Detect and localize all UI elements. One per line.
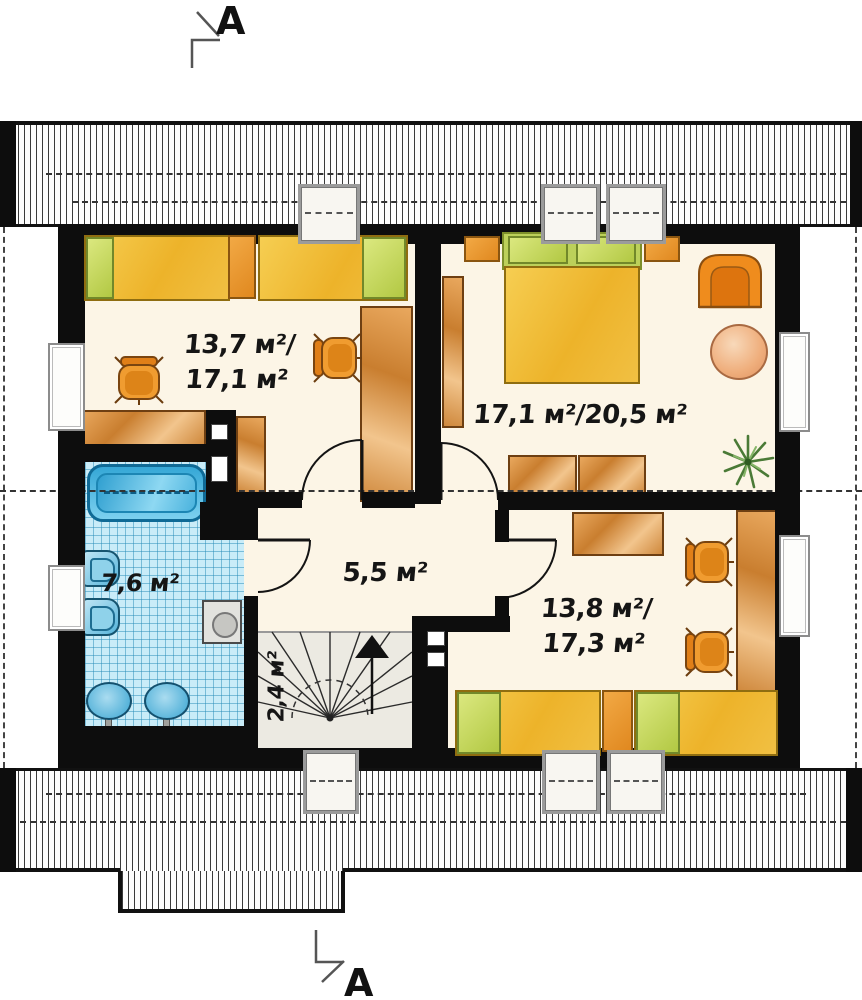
dormer-window-icon [303,750,359,814]
room-area-line2: 17,1 м² [155,363,318,398]
interior-wall [58,444,212,462]
bed-pillow-icon [636,692,680,754]
nightstand-icon [228,235,256,299]
room-label-child-room-1: 13,7 м²/ 17,1 м² [155,328,321,398]
plant-icon [724,436,773,487]
section-marker-a-top: A [216,2,245,40]
dormer-window-icon [606,184,666,244]
double-bed-icon [504,266,640,384]
interior-wall [362,492,415,508]
interior-wall [58,726,258,768]
room-area-line1: 13,8 м²/ [525,592,668,627]
exterior-wall-left [58,224,85,768]
dormer-window-icon [542,750,600,814]
window-icon [779,535,810,637]
flue-opening [211,424,228,440]
nightstand-icon [602,690,633,752]
interior-wall [200,502,258,540]
armchair-icon [699,255,761,307]
dormer-window-icon [607,750,665,814]
wardrobe-icon [442,276,464,428]
window-icon [48,343,85,431]
attic-floor-plan: 13,7 м²/ 17,1 м² 17,1 м²/20,5 м² 7,6 м² … [0,0,862,1000]
bed-pillow-icon [457,692,501,754]
room-label-child-room-2: 13,8 м²/ 17,3 м² [522,592,668,662]
dormer-window-icon [298,184,360,244]
interior-wall [415,244,441,504]
interior-wall [495,510,509,542]
room-label-hall: 5,5 м² [328,556,441,591]
room-label-bathroom: 7,6 м² [93,566,186,601]
section-marker-a-bottom: A [344,964,373,1000]
room-area-line2: 17,3 м² [522,627,665,662]
flue-opening [211,456,228,482]
bed-pillow-icon [362,237,406,299]
flue-opening [427,631,445,646]
room-label-master-bedroom: 17,1 м²/20,5 м² [468,398,691,433]
room-label-staircase: 2,4 м² [260,640,295,733]
flue-opening [427,652,445,667]
window-icon [779,332,810,432]
window-icon [48,565,85,631]
room-area-line1: 13,7 м²/ [158,328,321,363]
interior-wall [498,492,800,510]
nightstand-icon [464,236,500,262]
dormer-window-icon [541,184,600,244]
bed-pillow-icon [86,237,114,299]
